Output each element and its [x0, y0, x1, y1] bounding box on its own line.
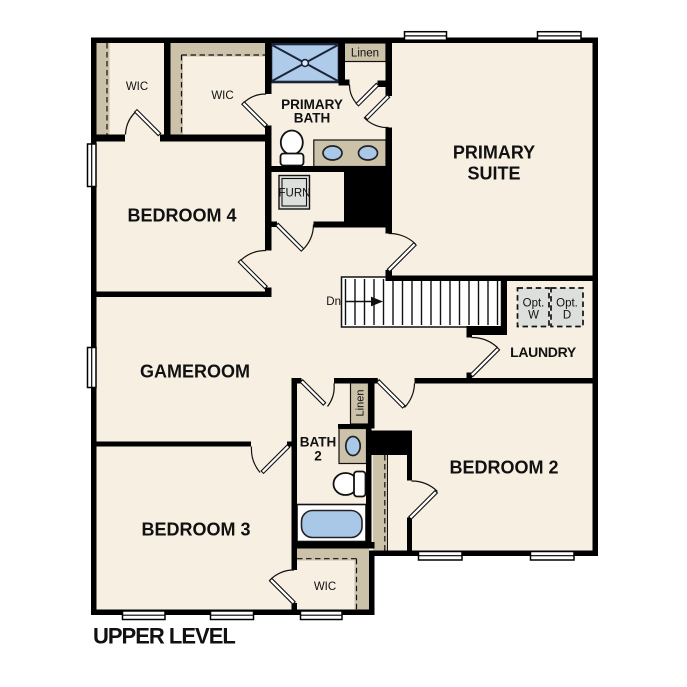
- svg-text:PRIMARY: PRIMARY: [453, 143, 535, 163]
- svg-text:BEDROOM 4: BEDROOM 4: [127, 206, 236, 226]
- svg-text:D: D: [563, 310, 571, 322]
- svg-text:W: W: [528, 310, 539, 322]
- svg-text:BATH: BATH: [300, 435, 337, 450]
- svg-text:WIC: WIC: [211, 90, 233, 102]
- svg-text:UPPER LEVEL: UPPER LEVEL: [93, 624, 235, 649]
- svg-text:SUITE: SUITE: [467, 164, 520, 184]
- svg-text:LAUNDRY: LAUNDRY: [510, 344, 577, 360]
- svg-text:Opt.: Opt.: [523, 298, 545, 310]
- svg-text:GAMEROOM: GAMEROOM: [140, 362, 250, 382]
- svg-text:2: 2: [314, 449, 322, 464]
- svg-text:BATH: BATH: [294, 111, 331, 126]
- svg-text:BEDROOM 2: BEDROOM 2: [449, 458, 558, 478]
- svg-text:WIC: WIC: [314, 581, 336, 593]
- svg-text:FURN: FURN: [279, 188, 311, 200]
- svg-text:WIC: WIC: [126, 81, 148, 93]
- svg-text:BEDROOM 3: BEDROOM 3: [141, 520, 250, 540]
- svg-text:Dn: Dn: [326, 296, 341, 308]
- svg-text:Opt.: Opt.: [556, 298, 578, 310]
- svg-text:Linen: Linen: [351, 48, 379, 60]
- svg-text:Linen: Linen: [355, 390, 367, 417]
